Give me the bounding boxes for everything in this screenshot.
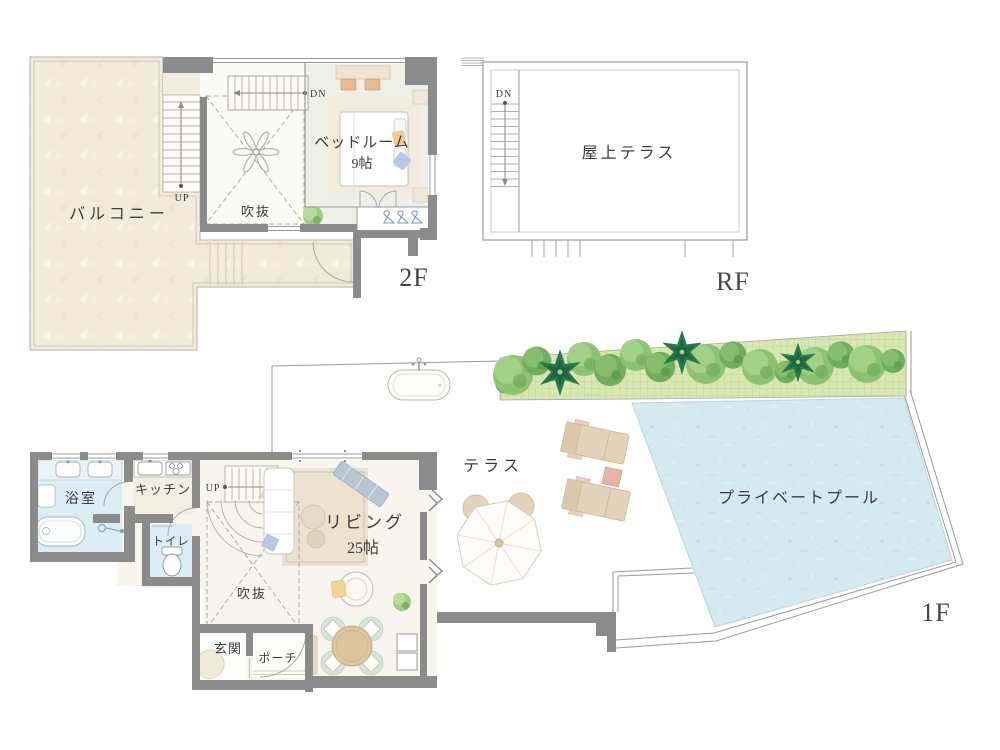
label-dn-rf: DN bbox=[496, 89, 512, 100]
lounger-icon-2 bbox=[561, 475, 632, 525]
sliding-door-icon-2f bbox=[268, 225, 300, 231]
side-table-icon bbox=[602, 467, 622, 487]
pouf-icon bbox=[301, 505, 325, 529]
label-living: リビング bbox=[325, 513, 405, 532]
rf-ticks bbox=[532, 240, 733, 257]
label-dn-2f: DN bbox=[310, 89, 326, 100]
cabinet-icon bbox=[397, 634, 417, 651]
label-terrace: テラス bbox=[463, 458, 523, 475]
label-up-1f: UP bbox=[206, 483, 221, 494]
pouf-icon-2 bbox=[307, 530, 325, 548]
terrace-wall bbox=[420, 612, 616, 652]
floor-plan-drawing: UP DN bbox=[0, 0, 1000, 750]
label-porch: ポーチ bbox=[258, 651, 297, 665]
stairs-2f-up-icon bbox=[163, 95, 200, 192]
floor-tag-rf: RF bbox=[716, 267, 750, 296]
label-bathroom: 浴室 bbox=[65, 490, 97, 507]
label-void-1f: 吹抜 bbox=[237, 586, 267, 601]
label-up-2f: UP bbox=[175, 193, 190, 204]
floor-plan-canvas: UP DN bbox=[0, 0, 1000, 750]
label-living-size: 25帖 bbox=[347, 539, 379, 557]
parasol-set-icon bbox=[457, 493, 541, 585]
label-balcony: バルコニー bbox=[69, 206, 169, 223]
cabinet-icon-2 bbox=[397, 653, 417, 670]
label-kitchen: キッチン bbox=[135, 482, 191, 497]
plan-2f: UP DN bbox=[30, 57, 437, 350]
plant-icon-2f bbox=[303, 206, 323, 226]
label-entrance: 玄関 bbox=[214, 641, 242, 656]
label-roof-terrace: 屋上テラス bbox=[582, 144, 677, 162]
toilet-icon bbox=[162, 547, 182, 576]
plant-icon-1f bbox=[393, 593, 411, 611]
pool-texture bbox=[632, 398, 952, 627]
plan-1f: UP bbox=[30, 330, 963, 692]
floor-tag-2f: 2F bbox=[399, 263, 428, 292]
label-bedroom-size: 9帖 bbox=[352, 156, 373, 172]
label-bedroom: ベッドルーム bbox=[314, 135, 410, 151]
outdoor-bathtub-icon bbox=[388, 358, 450, 400]
stairs-2f-down-icon bbox=[228, 76, 308, 110]
floor-tag-1f: 1F bbox=[921, 598, 950, 627]
lounger-icon bbox=[560, 418, 631, 468]
label-void-2f: 吹抜 bbox=[241, 204, 271, 219]
plan-rf: DN 屋上テラス RF bbox=[462, 58, 750, 296]
rf-hatch bbox=[462, 58, 484, 66]
label-pool: プライベートプール bbox=[718, 489, 880, 507]
sofa-icon bbox=[262, 468, 294, 554]
label-toilet: トイレ bbox=[152, 536, 190, 548]
kitchen-fixtures bbox=[134, 460, 192, 478]
